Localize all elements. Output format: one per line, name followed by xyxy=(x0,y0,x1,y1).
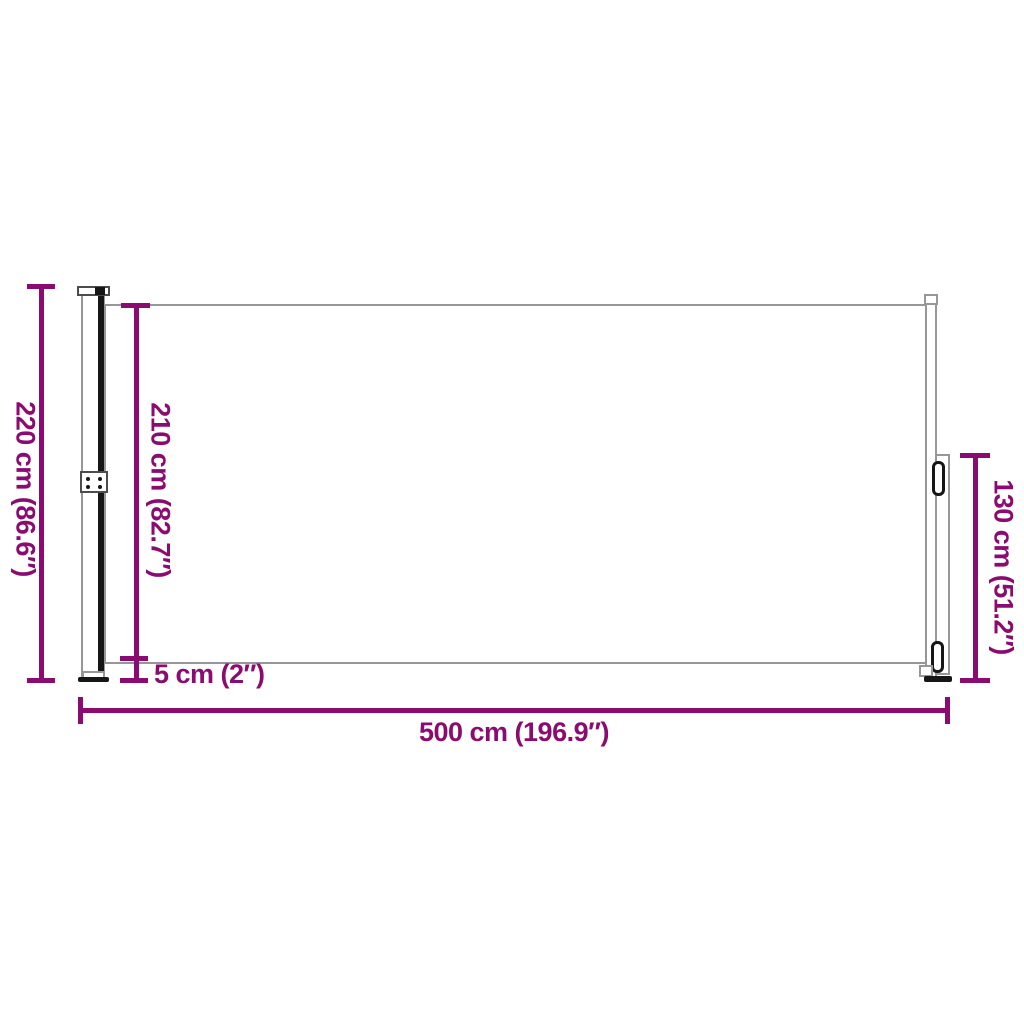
dim-label-total-length: 500 cm (196.9″) xyxy=(80,719,948,746)
screw-icon xyxy=(98,485,102,489)
dim-cap xyxy=(960,678,990,683)
dim-cap xyxy=(27,284,55,289)
pull-pole-cap xyxy=(924,294,938,305)
dim-cap xyxy=(120,678,148,683)
dim-cap xyxy=(27,678,55,683)
dim-cap xyxy=(120,656,148,661)
pole-foot xyxy=(924,676,952,682)
dim-line-fabric-height xyxy=(134,303,139,683)
screw-icon xyxy=(86,485,90,489)
dim-cap xyxy=(121,303,150,308)
screw-icon xyxy=(98,477,102,481)
dim-cap xyxy=(960,453,990,458)
pole-handle-top xyxy=(932,461,945,496)
dim-label-total-height: 220 cm (86.6″) xyxy=(12,401,39,577)
dim-label-pole-height: 130 cm (51.2″) xyxy=(990,479,1017,655)
dim-line-pole-height xyxy=(973,454,978,683)
cassette-foot xyxy=(78,677,109,682)
dim-line-total-length xyxy=(80,708,948,713)
awning-screen xyxy=(104,304,928,664)
dim-label-fabric-height: 210 cm (82.7″) xyxy=(147,402,174,578)
dim-label-ground-clearance: 5 cm (2″) xyxy=(154,661,264,688)
cassette-cap xyxy=(77,286,110,296)
mounting-plate xyxy=(80,471,108,493)
dimension-diagram: 220 cm (86.6″) 210 cm (82.7″) 5 cm (2″) … xyxy=(0,0,1024,1024)
cassette-cap-latch xyxy=(95,287,105,295)
screw-icon xyxy=(86,477,90,481)
